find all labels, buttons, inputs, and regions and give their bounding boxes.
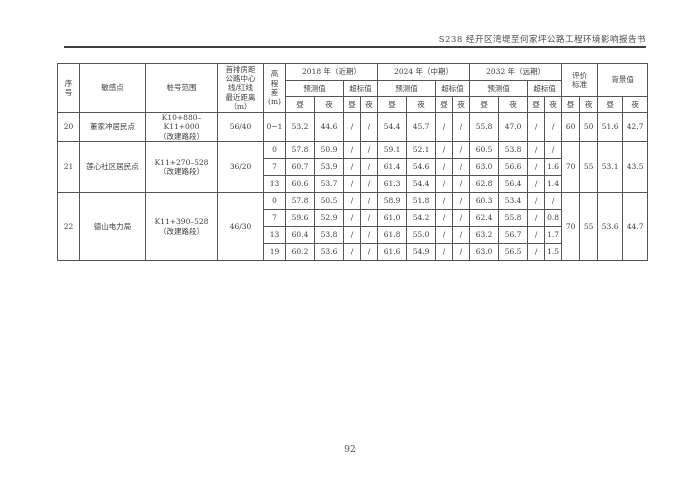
value-cell: / — [344, 193, 361, 210]
col-header-year-2024: 2024 年（中期） — [378, 64, 470, 81]
value-cell: / — [344, 244, 361, 261]
value-cell: / — [545, 142, 562, 159]
value-cell: / — [528, 244, 545, 261]
value-cell: / — [361, 142, 378, 159]
page-number: 92 — [0, 445, 700, 455]
value-cell: 60.4 — [286, 227, 315, 244]
value-cell: 56.5 — [499, 244, 528, 261]
bg-day-cell: 51.6 — [598, 113, 623, 142]
value-cell: 53.7 — [315, 176, 344, 193]
elev-cell: 13 — [264, 227, 286, 244]
elev-cell: 0~1 — [264, 113, 286, 142]
value-cell: / — [528, 227, 545, 244]
col-header-night: 夜 — [453, 97, 470, 113]
value-cell: / — [436, 113, 453, 142]
value-cell: / — [361, 193, 378, 210]
value-cell: 54.4 — [407, 176, 436, 193]
col-header-day: 昼 — [528, 97, 545, 113]
col-header-stake: 桩号范围 — [146, 64, 218, 113]
col-header-seq: 序 号 — [58, 64, 80, 113]
value-cell: 56.4 — [499, 176, 528, 193]
seq-cell: 22 — [58, 193, 80, 261]
value-cell: / — [453, 244, 470, 261]
eval-night-cell: 55 — [580, 193, 598, 261]
value-cell: / — [361, 227, 378, 244]
col-header-eval-standard: 评价 标准 — [562, 64, 598, 97]
value-cell: 56.7 — [499, 227, 528, 244]
distance-cell: 56/40 — [218, 113, 264, 142]
col-header-night: 夜 — [361, 97, 378, 113]
value-cell: 1.6 — [545, 159, 562, 176]
col-header-day: 昼 — [344, 97, 361, 113]
distance-cell: 46/30 — [218, 193, 264, 261]
bg-night-cell: 42.7 — [623, 113, 648, 142]
value-cell: 63.0 — [470, 159, 499, 176]
value-cell: / — [545, 193, 562, 210]
value-cell: 53.2 — [286, 113, 315, 142]
table-row-21-sub-0: 21 莲心社区居民点 K11+270–528 （改建路段） 36/20 0 57… — [58, 142, 648, 159]
value-cell: / — [453, 159, 470, 176]
value-cell: 44.6 — [315, 113, 344, 142]
elev-cell: 0 — [264, 142, 286, 159]
eval-night-cell: 55 — [580, 142, 598, 193]
value-cell: 54.6 — [407, 159, 436, 176]
value-cell: / — [453, 210, 470, 227]
col-header-background: 背景值 — [598, 64, 648, 97]
value-cell: / — [453, 142, 470, 159]
value-cell: / — [361, 244, 378, 261]
value-cell: 50.9 — [315, 142, 344, 159]
stake-cell: K11+270–528 （改建路段） — [146, 142, 218, 193]
value-cell: / — [344, 210, 361, 227]
point-cell: 莲心社区居民点 — [80, 142, 146, 193]
value-cell: / — [344, 227, 361, 244]
value-cell: 53.6 — [315, 244, 344, 261]
elev-cell: 13 — [264, 176, 286, 193]
document-header: S238 经开区湾堤至何家坪公路工程环境影响报告书 — [64, 33, 646, 45]
value-cell: / — [436, 244, 453, 261]
header-title: S238 经开区湾堤至何家坪公路工程环境影响报告书 — [439, 35, 646, 45]
value-cell: 0.8 — [545, 210, 562, 227]
value-cell: / — [436, 142, 453, 159]
value-cell: 53.4 — [499, 193, 528, 210]
value-cell: / — [436, 176, 453, 193]
value-cell: 52.9 — [315, 210, 344, 227]
stake-cell: K11+390–528 （改建路段） — [146, 193, 218, 261]
header-row-1: 序 号 敏感点 桩号范围 首排房距 公路中心 线/红线 最近距离 （m） 高 程… — [58, 64, 648, 81]
value-cell: 52.1 — [407, 142, 436, 159]
elev-cell: 7 — [264, 210, 286, 227]
col-header-year-2032: 2032 年（远期） — [470, 64, 562, 81]
bg-night-cell: 44.7 — [623, 193, 648, 261]
value-cell: / — [436, 227, 453, 244]
noise-prediction-table: 序 号 敏感点 桩号范围 首排房距 公路中心 线/红线 最近距离 （m） 高 程… — [57, 63, 648, 261]
value-cell: 53.8 — [315, 227, 344, 244]
seq-cell: 20 — [58, 113, 80, 142]
document-page: S238 经开区湾堤至何家坪公路工程环境影响报告书 序 号 敏感点 桩号范围 首… — [0, 0, 700, 495]
header-rule — [64, 46, 646, 48]
col-header-elev: 高 程 差 (m) — [264, 64, 286, 113]
col-header-exceedance: 超标值 — [344, 81, 378, 97]
col-header-exceedance: 超标值 — [528, 81, 562, 97]
value-cell: / — [528, 210, 545, 227]
value-cell: 54.4 — [378, 113, 407, 142]
value-cell: / — [344, 159, 361, 176]
col-header-night: 夜 — [580, 97, 598, 113]
value-cell: / — [528, 176, 545, 193]
value-cell: 61.6 — [378, 244, 407, 261]
value-cell: 57.8 — [286, 142, 315, 159]
elev-cell: 7 — [264, 159, 286, 176]
col-header-night: 夜 — [499, 97, 528, 113]
col-header-day: 昼 — [562, 97, 580, 113]
distance-cell: 36/20 — [218, 142, 264, 193]
value-cell: / — [453, 113, 470, 142]
value-cell: 55.8 — [470, 113, 499, 142]
value-cell: 56.6 — [499, 159, 528, 176]
value-cell: / — [361, 159, 378, 176]
col-header-day: 昼 — [598, 97, 623, 113]
value-cell: / — [436, 159, 453, 176]
col-header-exceedance: 超标值 — [436, 81, 470, 97]
seq-cell: 21 — [58, 142, 80, 193]
value-cell: / — [436, 193, 453, 210]
col-header-day: 昼 — [286, 97, 315, 113]
col-header-night: 夜 — [623, 97, 648, 113]
value-cell: 54.9 — [407, 244, 436, 261]
point-cell: 德山电力局 — [80, 193, 146, 261]
value-cell: 51.8 — [407, 193, 436, 210]
value-cell: 63.2 — [470, 227, 499, 244]
value-cell: / — [528, 142, 545, 159]
value-cell: / — [528, 159, 545, 176]
value-cell: 1.4 — [545, 176, 562, 193]
value-cell: 60.5 — [470, 142, 499, 159]
value-cell: 60.3 — [470, 193, 499, 210]
value-cell: 53.9 — [315, 159, 344, 176]
col-header-distance: 首排房距 公路中心 线/红线 最近距离 （m） — [218, 64, 264, 113]
value-cell: 62.4 — [470, 210, 499, 227]
value-cell: 57.8 — [286, 193, 315, 210]
point-cell: 董家冲居民点 — [80, 113, 146, 142]
col-header-night: 夜 — [315, 97, 344, 113]
elev-cell: 0 — [264, 193, 286, 210]
bg-day-cell: 53.1 — [598, 142, 623, 193]
value-cell: 58.9 — [378, 193, 407, 210]
value-cell: 55.0 — [407, 227, 436, 244]
value-cell: 61.0 — [378, 210, 407, 227]
eval-day-cell: 70 — [562, 193, 580, 261]
value-cell: 61.8 — [378, 227, 407, 244]
value-cell: / — [344, 113, 361, 142]
col-header-point: 敏感点 — [80, 64, 146, 113]
value-cell: 60.6 — [286, 176, 315, 193]
col-header-predicted: 预测值 — [378, 81, 436, 97]
col-header-night: 夜 — [545, 97, 562, 113]
value-cell: 61.3 — [378, 176, 407, 193]
col-header-night: 夜 — [407, 97, 436, 113]
value-cell: / — [453, 193, 470, 210]
value-cell: / — [453, 227, 470, 244]
value-cell: / — [361, 210, 378, 227]
elev-cell: 19 — [264, 244, 286, 261]
value-cell: / — [528, 113, 545, 142]
value-cell: / — [344, 142, 361, 159]
bg-day-cell: 53.6 — [598, 193, 623, 261]
col-header-day: 昼 — [378, 97, 407, 113]
value-cell: 59.1 — [378, 142, 407, 159]
value-cell: / — [344, 176, 361, 193]
table-row-22-sub-0: 22 德山电力局 K11+390–528 （改建路段） 46/30 0 57.8… — [58, 193, 648, 210]
eval-day-cell: 70 — [562, 142, 580, 193]
value-cell: 63.0 — [470, 244, 499, 261]
value-cell: 59.6 — [286, 210, 315, 227]
value-cell: 1.7 — [545, 227, 562, 244]
value-cell: 60.2 — [286, 244, 315, 261]
value-cell: / — [361, 113, 378, 142]
eval-day-cell: 60 — [562, 113, 580, 142]
col-header-predicted: 预测值 — [470, 81, 528, 97]
value-cell: 61.4 — [378, 159, 407, 176]
value-cell: / — [436, 210, 453, 227]
value-cell: 47.0 — [499, 113, 528, 142]
value-cell: / — [528, 193, 545, 210]
value-cell: / — [361, 176, 378, 193]
col-header-year-2018: 2018 年（近期） — [286, 64, 378, 81]
col-header-day: 昼 — [436, 97, 453, 113]
value-cell: 1.5 — [545, 244, 562, 261]
value-cell: 62.8 — [470, 176, 499, 193]
col-header-day: 昼 — [470, 97, 499, 113]
col-header-predicted: 预测值 — [286, 81, 344, 97]
bg-night-cell: 43.5 — [623, 142, 648, 193]
value-cell: 53.8 — [499, 142, 528, 159]
value-cell: / — [545, 113, 562, 142]
table-row-20: 20 董家冲居民点 K10+880–K11+000 （改建路段） 56/40 0… — [58, 113, 648, 142]
value-cell: 54.2 — [407, 210, 436, 227]
value-cell: 60.7 — [286, 159, 315, 176]
value-cell: / — [453, 176, 470, 193]
value-cell: 55.8 — [499, 210, 528, 227]
value-cell: 50.5 — [315, 193, 344, 210]
stake-cell: K10+880–K11+000 （改建路段） — [146, 113, 218, 142]
eval-night-cell: 50 — [580, 113, 598, 142]
value-cell: 45.7 — [407, 113, 436, 142]
